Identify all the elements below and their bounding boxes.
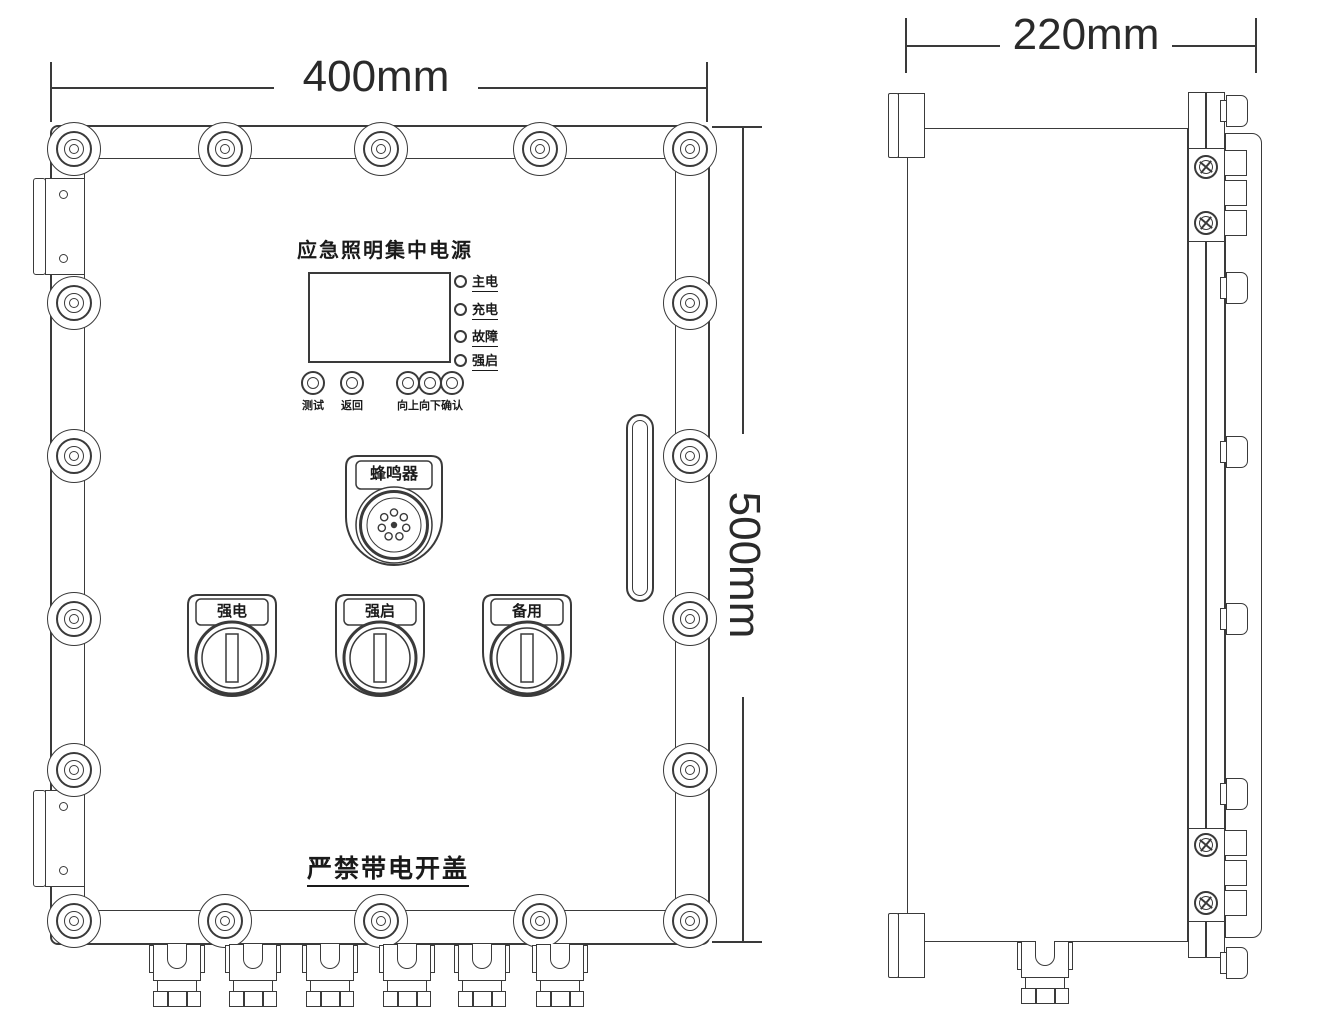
bolt-hole	[535, 144, 545, 154]
cable-gland-icon	[377, 944, 437, 1010]
dim-400-tick-right	[706, 62, 708, 122]
cable-gland-icon	[530, 944, 590, 1010]
bolt-head-side-icon	[1226, 272, 1248, 304]
panel-title: 应急照明集中电源	[275, 234, 495, 263]
mounting-lug-top	[33, 178, 85, 275]
led-icon	[454, 303, 467, 316]
key-switch-label: 强启	[344, 599, 416, 625]
bolt-hole	[220, 144, 230, 154]
dim-500-line-bottom	[742, 697, 744, 942]
bolt-hole	[376, 144, 386, 154]
bolt-head-side-icon	[1226, 436, 1248, 468]
bolt-hole	[535, 916, 545, 926]
bolt-hole	[69, 765, 79, 775]
key-switch-label: 强电	[196, 599, 268, 625]
hinge-knuckle-icon	[1224, 890, 1247, 916]
bolt-icon	[47, 894, 101, 948]
gland-entry	[472, 944, 492, 969]
cable-gland-icon	[147, 944, 207, 1010]
bolt-hole	[69, 916, 79, 926]
bolt-icon	[513, 894, 567, 948]
door-handle-inner	[632, 420, 648, 596]
gland-hex-nut	[458, 991, 506, 1007]
bolt-hole	[69, 451, 79, 461]
button-label: 确认	[438, 397, 466, 413]
bolt-icon	[663, 743, 717, 797]
gland-hex-nut	[536, 991, 584, 1007]
key-slot-icon	[521, 634, 533, 682]
bolt-icon	[198, 894, 252, 948]
hinge-knuckle-icon	[1224, 860, 1247, 886]
dim-400-tick-left	[50, 62, 52, 122]
side-body	[907, 128, 1188, 942]
gland-entry	[243, 944, 263, 969]
bolt-icon	[47, 276, 101, 330]
led-icon	[454, 354, 467, 367]
mounting-lug-bottom	[33, 790, 85, 887]
bolt-hole	[685, 144, 695, 154]
side-mounting-lug-bottom	[888, 913, 925, 978]
gland-hex-nut	[306, 991, 354, 1007]
button-confirm: 确认	[438, 371, 466, 413]
bolt-icon	[663, 429, 717, 483]
bolt-head-side-icon	[1226, 603, 1248, 635]
indicator-charging: 充电	[454, 300, 498, 318]
lug-screw-hole-icon	[59, 866, 68, 875]
bolt-hole	[685, 298, 695, 308]
bolt-icon	[354, 894, 408, 948]
bolt-hole	[685, 916, 695, 926]
dim-500-line-top	[742, 128, 744, 434]
key-slot-icon	[374, 634, 386, 682]
bolt-hole	[685, 451, 695, 461]
button-test: 测试	[299, 371, 327, 413]
gland-entry	[1035, 941, 1055, 966]
bolt-hole	[69, 614, 79, 624]
bolt-icon	[663, 592, 717, 646]
indicator-label: 故障	[472, 326, 498, 347]
dim-220-line-left	[906, 45, 1000, 47]
gland-entry	[167, 944, 187, 969]
dim-500-label: 500mm	[720, 465, 768, 665]
led-icon	[454, 275, 467, 288]
button-label: 返回	[338, 397, 366, 413]
buzzer-label: 蜂鸣器	[356, 461, 432, 489]
indicator-label: 充电	[472, 299, 498, 320]
lug-screw-hole-icon	[59, 254, 68, 263]
bolt-icon	[47, 122, 101, 176]
hinge-knuckle-icon	[1224, 150, 1247, 176]
gland-hex-nut	[383, 991, 431, 1007]
gland-entry	[397, 944, 417, 969]
key-slot-icon	[226, 634, 238, 682]
indicator-label: 强启	[472, 350, 498, 371]
lug-body	[898, 93, 925, 158]
warning-text: 严禁带电开盖	[258, 849, 518, 885]
hinge-knuckle-icon	[1224, 210, 1247, 236]
lug-body	[898, 913, 925, 978]
button-return: 返回	[338, 371, 366, 413]
lcd-screen	[308, 272, 451, 363]
button-icon	[340, 371, 364, 395]
dim-500-ext-bottom	[712, 941, 762, 943]
bolt-hole	[685, 765, 695, 775]
dim-400-label: 400mm	[276, 52, 476, 102]
dim-220-label: 220mm	[1000, 10, 1172, 60]
gland-entry	[550, 944, 570, 969]
bolt-hole	[376, 916, 386, 926]
bolt-icon	[513, 122, 567, 176]
bolt-icon	[663, 122, 717, 176]
hinge-knuckle-icon	[1224, 830, 1247, 856]
bolt-icon	[47, 429, 101, 483]
bolt-hole	[685, 614, 695, 624]
indicator-label: 主电	[472, 271, 498, 292]
gland-hex-nut	[153, 991, 201, 1007]
bolt-icon	[47, 743, 101, 797]
gland-hex-nut	[1021, 988, 1069, 1004]
cable-gland-icon	[300, 944, 360, 1010]
key-switch-label: 备用	[491, 599, 563, 625]
lug-screw-hole-icon	[59, 190, 68, 199]
dim-400-line-left	[52, 87, 274, 89]
bolt-head-side-icon	[1226, 778, 1248, 810]
bolt-hole	[69, 144, 79, 154]
cable-gland-icon	[452, 944, 512, 1010]
button-icon	[301, 371, 325, 395]
enclosure-drawing: 400mm 500mm 220mm 应急照明集中电源 主电 充电	[0, 0, 1321, 1030]
bolt-head-side-icon	[1226, 947, 1248, 979]
bolt-icon	[663, 276, 717, 330]
cable-gland-icon	[223, 944, 283, 1010]
gland-entry	[320, 944, 340, 969]
lug-screw-hole-icon	[59, 802, 68, 811]
bolt-icon	[354, 122, 408, 176]
dim-220-line-right	[1172, 45, 1256, 47]
indicator-fault: 故障	[454, 327, 498, 345]
button-label: 测试	[299, 397, 327, 413]
bolt-icon	[198, 122, 252, 176]
dim-500-ext-top	[712, 126, 762, 128]
bolt-hole	[220, 916, 230, 926]
dim-400-line-right	[478, 87, 706, 89]
side-door-panel	[1225, 133, 1262, 938]
bolt-hole	[69, 298, 79, 308]
bolt-head-side-icon	[1226, 95, 1248, 127]
warning-label: 严禁带电开盖	[307, 855, 469, 887]
indicator-force-start: 强启	[454, 351, 498, 369]
gland-hex-nut	[229, 991, 277, 1007]
hinge-knuckle-icon	[1224, 180, 1247, 206]
led-icon	[454, 330, 467, 343]
cable-gland-icon	[1015, 941, 1075, 1007]
indicator-main-power: 主电	[454, 272, 498, 290]
button-icon	[440, 371, 464, 395]
side-mounting-lug-top	[888, 93, 925, 158]
bolt-icon	[663, 894, 717, 948]
bolt-icon	[47, 592, 101, 646]
